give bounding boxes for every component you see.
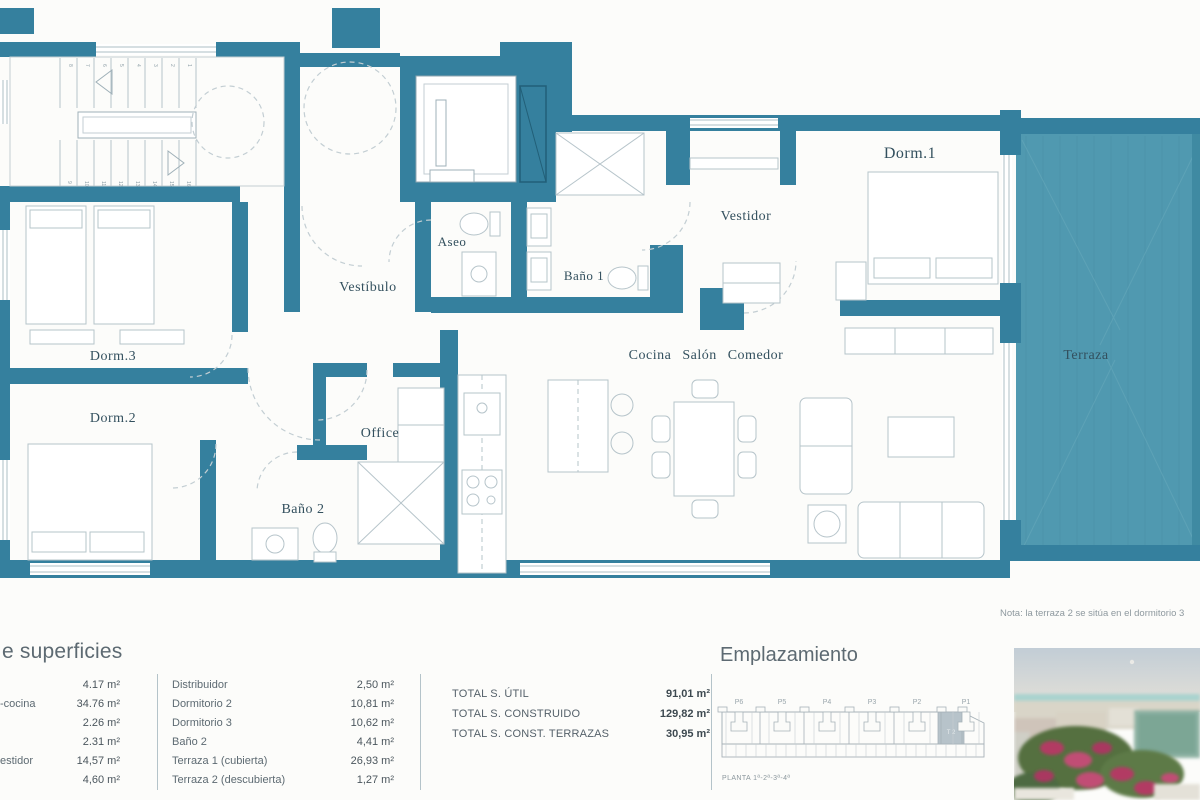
surface-value: 10,62 m² bbox=[324, 714, 394, 733]
surfaces-table-title: e superficies bbox=[2, 640, 123, 664]
surface-value: 2.31 m² bbox=[50, 733, 120, 752]
surface-value: 4.17 m² bbox=[50, 676, 120, 695]
plan-note: Nota: la terraza 2 se sitúa en el dormit… bbox=[1000, 608, 1200, 619]
surface-value: 2,50 m² bbox=[324, 676, 394, 695]
surface-label: Distribuidor bbox=[172, 676, 324, 695]
emplazamiento-diagram: T 2 P6P5P4P3P2P1 PLANTA 1ª-2ª-3ª-4ª bbox=[716, 696, 1006, 796]
room-label-terraza: Terraza bbox=[1063, 348, 1109, 363]
staircase-symbol: 12345678910111213141516 bbox=[10, 57, 284, 187]
surface-row: Baño 24,41 m² bbox=[172, 733, 394, 752]
terrace-area bbox=[1016, 134, 1200, 560]
surface-row: 4.17 m² bbox=[0, 676, 120, 695]
svg-text:15: 15 bbox=[168, 181, 174, 187]
column-divider bbox=[420, 674, 421, 790]
total-label: TOTAL S. CONSTRUIDO bbox=[452, 704, 640, 724]
total-value: 30,95 m² bbox=[640, 724, 710, 744]
highlighted-unit-label: T 2 bbox=[947, 730, 956, 736]
svg-text:2: 2 bbox=[169, 64, 175, 67]
svg-text:13: 13 bbox=[134, 181, 140, 187]
portal-label: P3 bbox=[868, 699, 877, 706]
surface-row: 4,60 m² bbox=[0, 771, 120, 790]
surface-row: Terraza 1 (cubierta)26,93 m² bbox=[172, 752, 394, 771]
portal-label: P2 bbox=[913, 699, 922, 706]
surface-label: Dormitorio 3 bbox=[172, 714, 324, 733]
portal-label: P6 bbox=[735, 699, 744, 706]
room-label-bano1: Baño 1 bbox=[564, 268, 604, 283]
surface-value: 2.26 m² bbox=[50, 714, 120, 733]
emplazamiento-title: Emplazamiento bbox=[720, 644, 858, 667]
svg-text:8: 8 bbox=[67, 64, 73, 67]
surface-value: 4,41 m² bbox=[324, 733, 394, 752]
surface-label: Terraza 2 (descubierta) bbox=[172, 771, 324, 790]
total-value: 91,01 m² bbox=[640, 684, 710, 704]
room-label-vestidor: Vestidor bbox=[721, 209, 772, 224]
column-divider bbox=[711, 674, 712, 790]
surface-label bbox=[0, 771, 50, 790]
total-label: TOTAL S. CONST. TERRAZAS bbox=[452, 724, 640, 744]
surface-row: Dormitorio 310,62 m² bbox=[172, 714, 394, 733]
surface-row: Dormitorio 210,81 m² bbox=[172, 695, 394, 714]
column-divider bbox=[157, 674, 158, 790]
room-label-aseo: Aseo bbox=[438, 234, 467, 249]
svg-text:16: 16 bbox=[185, 181, 191, 187]
svg-text:6: 6 bbox=[101, 64, 107, 67]
room-label-dorm2: Dorm.2 bbox=[90, 411, 136, 426]
surface-row: Terraza 2 (descubierta)1,27 m² bbox=[172, 771, 394, 790]
svg-text:5: 5 bbox=[118, 64, 124, 67]
room-label-salon: Cocina Salón Comedor bbox=[629, 348, 784, 363]
svg-text:1: 1 bbox=[186, 64, 192, 67]
surface-label bbox=[0, 676, 50, 695]
surface-row: 2.26 m² bbox=[0, 714, 120, 733]
surface-row: estidor14,57 m² bbox=[0, 752, 120, 771]
room-label-office: Office bbox=[361, 426, 400, 441]
svg-text:12: 12 bbox=[117, 181, 123, 187]
surface-label: estidor bbox=[0, 752, 50, 771]
surface-label bbox=[0, 714, 50, 733]
svg-text:14: 14 bbox=[151, 181, 157, 187]
room-label-bano2: Baño 2 bbox=[281, 502, 324, 517]
room-label-vestibulo: Vestíbulo bbox=[339, 280, 396, 295]
floor-plan-drawing: 12345678910111213141516 bbox=[0, 0, 1200, 632]
room-label-dorm3: Dorm.3 bbox=[90, 349, 136, 364]
total-value: 129,82 m² bbox=[640, 704, 710, 724]
portal-label: P5 bbox=[778, 699, 787, 706]
surface-value: 14,57 m² bbox=[50, 752, 120, 771]
surface-value: 10,81 m² bbox=[324, 695, 394, 714]
total-label: TOTAL S. ÚTIL bbox=[452, 684, 640, 704]
svg-text:4: 4 bbox=[135, 64, 141, 67]
surface-label bbox=[0, 733, 50, 752]
surface-row: Distribuidor2,50 m² bbox=[172, 676, 394, 695]
emplazamiento-caption: PLANTA 1ª-2ª-3ª-4ª bbox=[722, 775, 790, 782]
svg-text:3: 3 bbox=[152, 64, 158, 67]
svg-text:7: 7 bbox=[84, 64, 90, 67]
portal-label: P1 bbox=[962, 699, 971, 706]
surface-value: 26,93 m² bbox=[324, 752, 394, 771]
surface-value: 34.76 m² bbox=[50, 695, 120, 714]
floor-plan-sheet: 12345678910111213141516 bbox=[0, 0, 1200, 800]
surfaces-column-1: 4.17 m² -cocina34.76 m² 2.26 m² 2.31 m² … bbox=[0, 676, 120, 790]
surface-value: 1,27 m² bbox=[324, 771, 394, 790]
portal-label: P4 bbox=[823, 699, 832, 706]
surface-label: Baño 2 bbox=[172, 733, 324, 752]
total-row: TOTAL S. CONSTRUIDO129,82 m² bbox=[452, 704, 710, 724]
room-label-dorm1: Dorm.1 bbox=[884, 145, 936, 162]
surface-label: Terraza 1 (cubierta) bbox=[172, 752, 324, 771]
total-row: TOTAL S. CONST. TERRAZAS30,95 m² bbox=[452, 724, 710, 744]
surface-label: -cocina bbox=[0, 695, 50, 714]
surfaces-column-2: Distribuidor2,50 m² Dormitorio 210,81 m²… bbox=[172, 676, 394, 790]
surfaces-totals: TOTAL S. ÚTIL91,01 m² TOTAL S. CONSTRUID… bbox=[452, 684, 710, 744]
total-row: TOTAL S. ÚTIL91,01 m² bbox=[452, 684, 710, 704]
surface-row: 2.31 m² bbox=[0, 733, 120, 752]
surface-label: Dormitorio 2 bbox=[172, 695, 324, 714]
svg-text:11: 11 bbox=[100, 181, 106, 186]
surface-row: -cocina34.76 m² bbox=[0, 695, 120, 714]
aerial-render-photo bbox=[1014, 648, 1200, 800]
surface-value: 4,60 m² bbox=[50, 771, 120, 790]
svg-text:9: 9 bbox=[66, 181, 72, 184]
svg-text:10: 10 bbox=[83, 181, 89, 187]
